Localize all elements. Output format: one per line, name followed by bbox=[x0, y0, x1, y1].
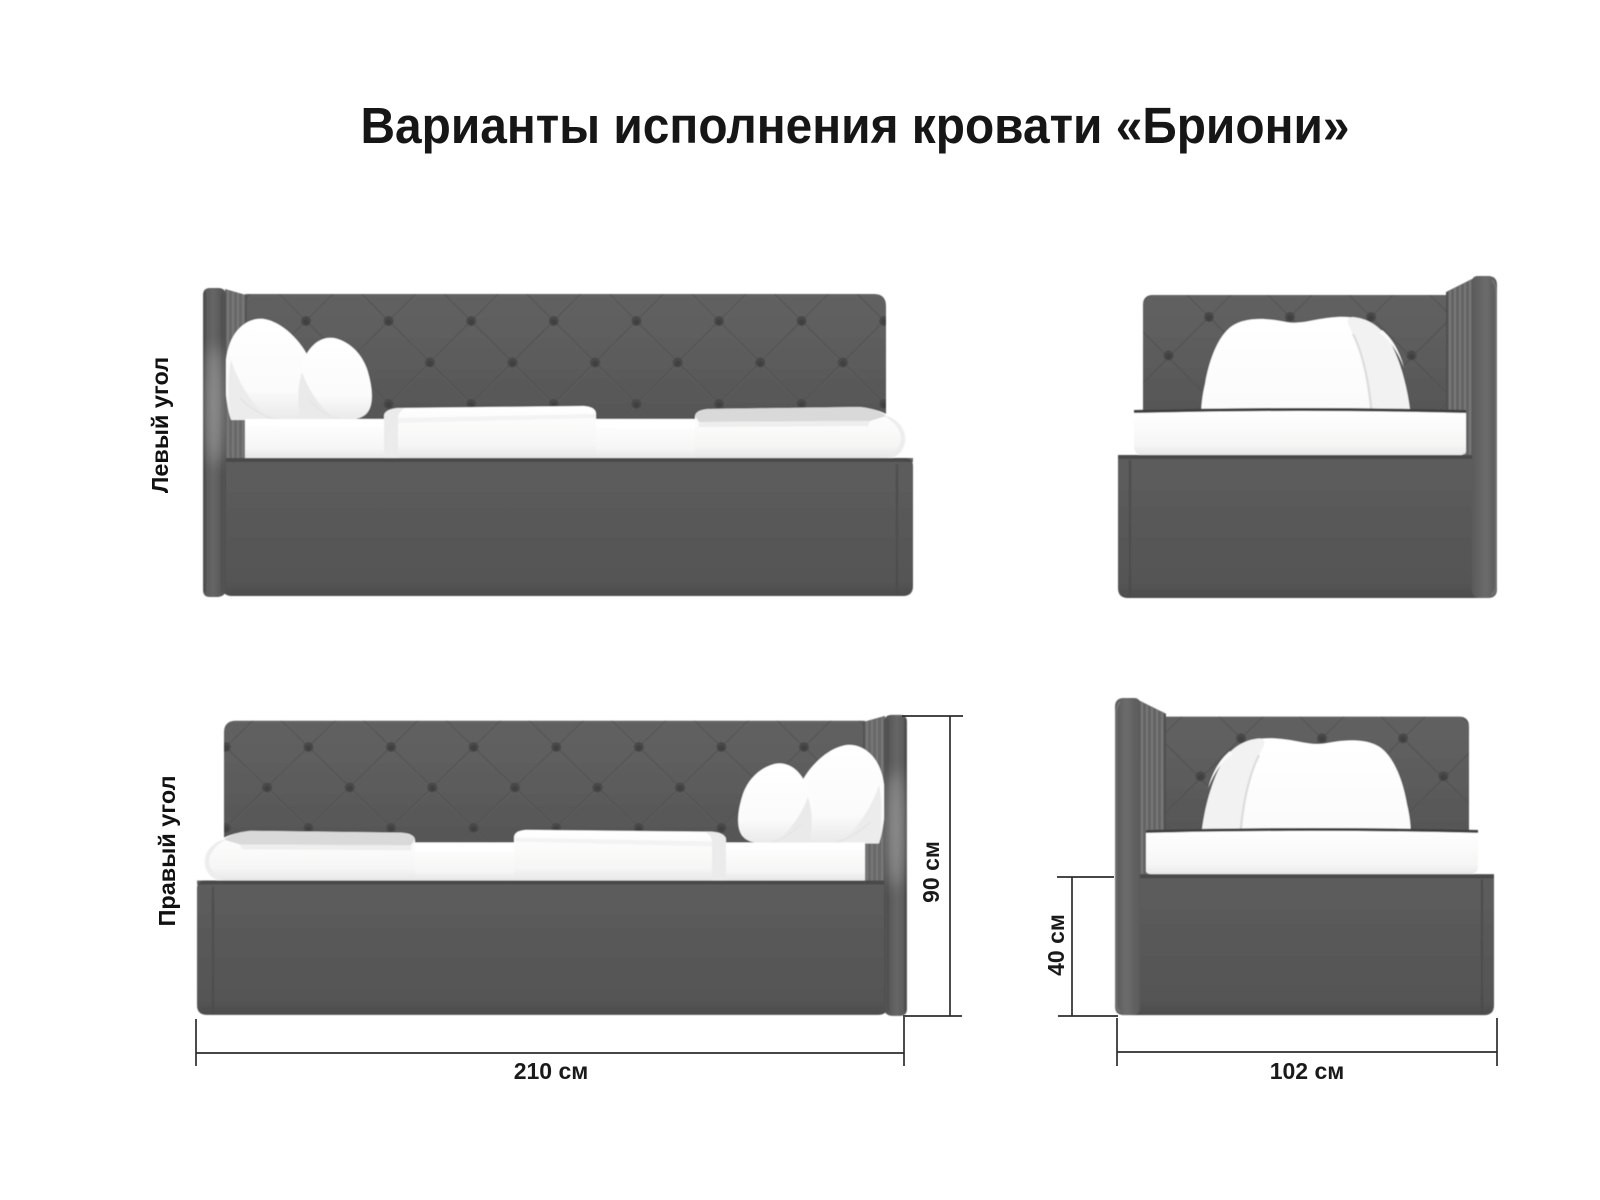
svg-text:Правый угол: Правый угол bbox=[154, 775, 180, 926]
svg-text:Варианты исполнения кровати «Б: Варианты исполнения кровати «Бриони» bbox=[361, 97, 1350, 154]
svg-text:210 см: 210 см bbox=[514, 1058, 589, 1084]
svg-text:Левый угол: Левый угол bbox=[147, 357, 173, 493]
svg-text:102 см: 102 см bbox=[1270, 1058, 1345, 1084]
svg-text:40 см: 40 см bbox=[1043, 914, 1069, 976]
svg-text:90 см: 90 см bbox=[918, 841, 944, 903]
